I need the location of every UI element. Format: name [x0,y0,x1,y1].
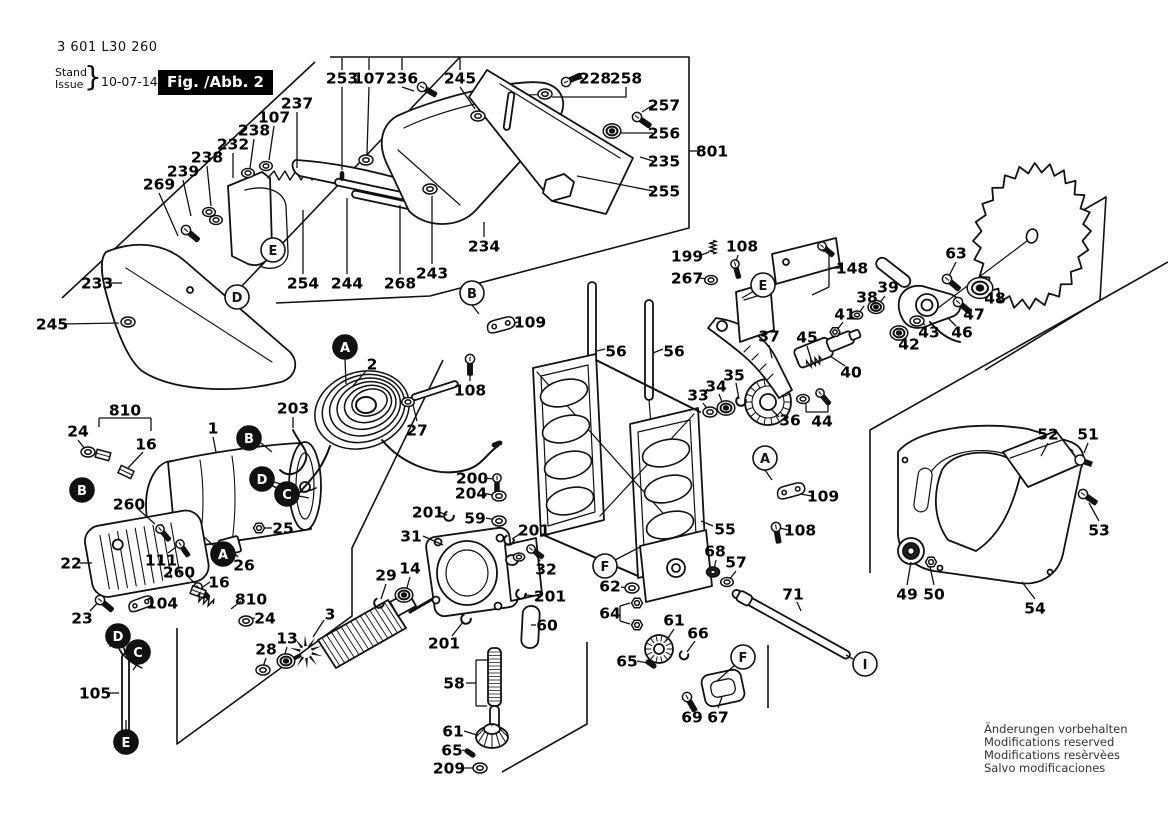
washer-hardware [260,162,273,171]
part-label-43: 43 [918,324,940,342]
part-label-233: 233 [81,275,113,293]
threaded-shaft-58 [488,648,501,732]
part-label-35: 35 [723,367,745,385]
issue-label: Issue [55,79,87,91]
ref-letter-F: F [731,645,755,669]
svg-text:B: B [467,287,477,302]
clip-hardware [373,597,384,608]
part-label-148: 148 [836,260,868,278]
grommet-hardware [707,567,720,577]
washer-hardware [121,317,135,327]
ref-letter-D: D [250,467,274,491]
svg-text:A: A [340,341,350,356]
washer-hardware [473,763,487,773]
washer-hardware [402,398,415,407]
part-label-25: 25 [272,520,294,538]
part-label-108: 108 [454,382,486,400]
part-label-200: 200 [456,470,489,488]
stand-issue-label: Stand Issue [55,67,87,91]
part-label-68: 68 [704,543,726,561]
washer-hardware [721,578,734,587]
part-label-65: 65 [441,742,463,760]
part-label-54: 54 [1024,600,1046,618]
ref-letter-B: B [460,281,484,305]
svg-text:D: D [257,473,268,488]
brush-hardware [118,465,134,478]
brace-glyph: } [84,60,102,93]
part-label-228: 228 [579,70,611,88]
part-label-260: 260 [113,496,146,514]
ref-letter-E: E [751,273,775,297]
part-label-67: 67 [707,709,729,727]
part-label-50: 50 [923,586,945,604]
spring-hardware [195,593,215,608]
part-label-28: 28 [255,641,277,659]
part-label-236: 236 [386,70,418,88]
bearing-hardware [603,124,621,138]
part-label-27: 27 [406,422,428,440]
nut-hardware [926,557,937,566]
modification-notes: Änderungen vorbehalten Modifications res… [984,723,1128,775]
washer-hardware [242,169,255,178]
nut-hardware [830,328,840,336]
part-label-199: 199 [671,248,703,266]
part-label-810: 810 [109,402,142,420]
washer-hardware [81,447,95,457]
part-label-234: 234 [468,238,501,256]
part-label-36: 36 [779,412,801,430]
washer-hardware [492,516,506,526]
part-label-109: 109 [514,314,546,332]
ref-letter-A: A [211,542,235,566]
part-label-235: 235 [648,153,680,171]
washer-hardware [359,155,373,165]
washer-hardware [256,665,270,675]
screw-hardware [941,273,963,293]
bearing-hardware [277,654,295,668]
document-part-number: 3 601 L30 260 [57,40,158,55]
pin-hardware [492,441,502,448]
armature-3 [290,592,436,669]
part-label-16: 16 [208,574,230,592]
gear-61-right [645,635,673,663]
ref-letter-E: E [114,730,138,754]
part-label-201: 201 [428,635,460,653]
svg-text:E: E [269,244,278,259]
svg-text:C: C [133,646,143,661]
svg-text:B: B [244,432,254,447]
bearing-hardware [717,401,735,415]
part-label-201: 201 [412,504,444,522]
part-label-108: 108 [784,522,816,540]
screw-hardware [730,259,743,279]
clip-hardware [460,613,471,624]
part-label-48: 48 [984,290,1006,308]
part-label-209: 209 [433,760,465,778]
clip-hardware [443,510,454,521]
part-label-55: 55 [714,521,736,539]
part-label-24: 24 [254,610,276,628]
part-label-62: 62 [599,578,621,596]
part-label-254: 254 [287,275,320,293]
part-label-258: 258 [610,70,642,88]
svg-text:I: I [863,658,868,673]
part-label-61: 61 [663,612,685,630]
part-label-105: 105 [79,685,111,703]
part-label-2: 2 [367,356,378,374]
svg-text:F: F [601,560,610,575]
part-label-14: 14 [399,560,421,578]
part-label-22: 22 [60,555,82,573]
part-label-52: 52 [1037,426,1059,444]
part-label-56: 56 [605,343,627,361]
nut-hardware [254,523,265,532]
part-label-244: 244 [331,275,364,293]
part-label-60: 60 [536,617,558,635]
part-label-810: 810 [235,591,268,609]
part-label-269: 269 [143,176,175,194]
screw-hardware [180,224,202,244]
part-label-37: 37 [758,328,780,346]
figure-label: Fig. /Abb. 2 [158,70,273,95]
ref-letter-F: F [593,554,617,578]
part-label-41: 41 [834,306,856,324]
part-label-203: 203 [277,400,309,418]
part-label-65: 65 [616,653,638,671]
part-label-32: 32 [535,561,557,579]
washer-hardware [797,395,810,404]
ref-letter-D: D [106,624,130,648]
ref-letter-I: I [853,652,877,676]
part-label-31: 31 [400,528,422,546]
part-label-256: 256 [648,125,680,143]
part-label-3: 3 [325,606,336,624]
part-label-109: 109 [807,488,839,506]
screw-hardware [493,474,501,493]
clamp-hardware [776,481,806,500]
clamp-hardware [486,315,516,334]
part-label-16: 16 [135,436,157,454]
washer-hardware [423,184,437,194]
svg-text:A: A [760,452,770,467]
screw-hardware [814,387,832,407]
part-label-243: 243 [416,265,448,283]
part-label-57: 57 [725,554,747,572]
wheel-49 [898,538,924,564]
part-label-267: 267 [671,270,703,288]
nut-hardware [632,598,643,607]
washer-hardware [705,276,718,285]
ref-letter-E: E [261,238,285,262]
exploded-diagram-canvas: 2531072362452282582572568012352552371072… [0,0,1168,825]
svg-text:D: D [113,630,124,645]
ref-letter-D: D [225,285,249,309]
part-label-107: 107 [353,70,385,88]
part-label-49: 49 [896,586,918,604]
part-label-24: 24 [67,423,89,441]
part-label-257: 257 [648,97,680,115]
part-label-260: 260 [163,564,196,582]
part-label-39: 39 [877,279,899,297]
part-label-71: 71 [782,586,804,604]
part-label-201: 201 [518,522,550,540]
part-label-38: 38 [856,289,878,307]
washer-hardware [625,583,639,593]
screw-hardware [771,522,784,544]
bracket-67 [700,668,746,708]
part-label-44: 44 [811,413,833,431]
rod-27 [411,380,459,401]
part-label-26: 26 [233,557,255,575]
part-label-53: 53 [1088,522,1110,540]
ref-letter-C: C [275,482,299,506]
part-label-268: 268 [384,275,416,293]
part-label-104: 104 [146,595,179,613]
part-label-255: 255 [648,183,680,201]
part-label-46: 46 [951,324,973,342]
brush-hardware [95,449,111,460]
part-label-1: 1 [208,420,219,438]
coil-wire-right [382,440,498,472]
part-label-245: 245 [36,316,68,334]
ref-letter-C: C [126,640,150,664]
note-es: Salvo modificaciones [984,762,1128,775]
part-label-47: 47 [963,306,985,324]
part-label-69: 69 [681,709,703,727]
washer-hardware [513,553,524,561]
washer-hardware [239,616,253,626]
svg-text:B: B [77,484,87,499]
washer-hardware [703,407,717,417]
part-label-63: 63 [945,245,967,263]
pin-hardware [340,172,343,180]
washer-hardware [492,491,506,501]
part-label-61: 61 [442,723,464,741]
bevel-gear-61 [476,724,508,748]
part-label-66: 66 [687,625,709,643]
part-label-58: 58 [443,675,465,693]
part-label-45: 45 [796,329,818,347]
svg-text:E: E [759,279,768,294]
frame-55 [533,354,712,602]
lever-46 [874,255,961,342]
nut-hardware [632,620,643,629]
part-label-13: 13 [276,630,298,648]
washer-hardware [538,89,552,99]
part-label-801: 801 [696,143,728,161]
svg-text:E: E [122,736,131,751]
pin-hardware [464,748,475,757]
part-label-201: 201 [534,588,566,606]
part-label-245: 245 [444,70,476,88]
part-label-29: 29 [375,567,397,585]
svg-text:D: D [232,291,243,306]
parts-diagram-page: 2531072362452282582572568012352552371072… [0,0,1168,825]
part-label-59: 59 [464,510,486,528]
bearing-hardware [395,588,413,602]
gearbox-31 [425,527,542,618]
ref-letter-A: A [753,446,777,470]
part-label-56: 56 [663,343,685,361]
ref-letter-B: B [70,478,94,502]
svg-text:C: C [282,488,292,503]
screw-hardware [1077,488,1099,507]
part-label-40: 40 [840,364,862,382]
spring-hardware [710,240,716,253]
svg-text:A: A [218,548,228,563]
washer-hardware [471,111,485,121]
ref-letter-B: B [237,426,261,450]
ref-letter-A: A [333,335,357,359]
part-label-51: 51 [1077,426,1099,444]
screw-hardware [465,354,474,375]
part-label-64: 64 [599,605,621,623]
part-label-23: 23 [71,610,93,628]
issue-date: 10-07-14 [101,74,158,89]
part-label-42: 42 [898,336,920,354]
washer-hardware [210,216,223,225]
svg-text:F: F [739,651,748,666]
part-label-108: 108 [726,238,758,256]
